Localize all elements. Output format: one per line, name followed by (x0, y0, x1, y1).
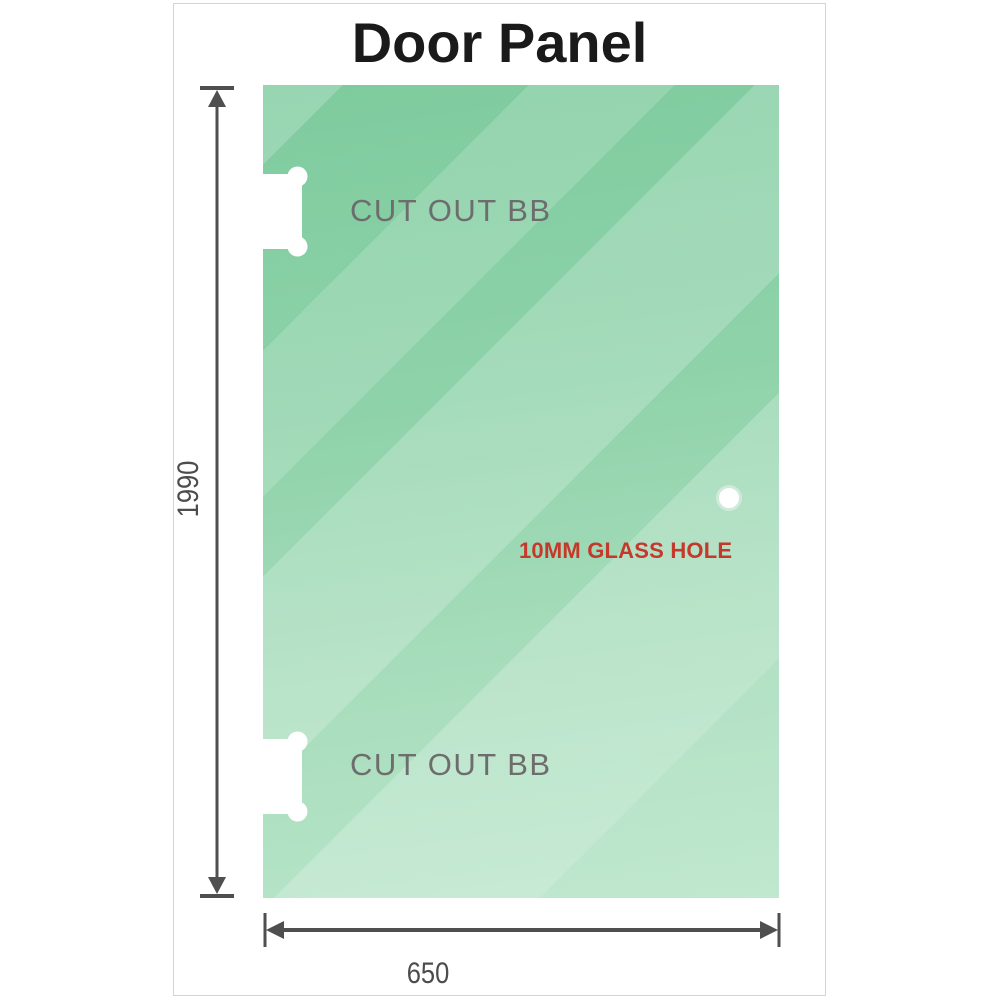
glass-hole-label: 10MM GLASS HOLE (519, 540, 732, 562)
glass-hole (718, 487, 741, 510)
cutout-bottom-shape (260, 732, 308, 822)
cutout-top-label: CUT OUT BB (350, 195, 552, 226)
height-dimension-label: 1990 (174, 455, 204, 523)
drawing-card: Door Panel (173, 3, 826, 996)
height-dimension-arrow (200, 88, 234, 896)
width-dimension-arrow (265, 913, 779, 947)
cutout-top-shape (260, 167, 308, 257)
drawing-overlay (174, 4, 827, 997)
cutout-bottom-label: CUT OUT BB (350, 749, 552, 780)
width-dimension-label: 650 (386, 959, 471, 989)
